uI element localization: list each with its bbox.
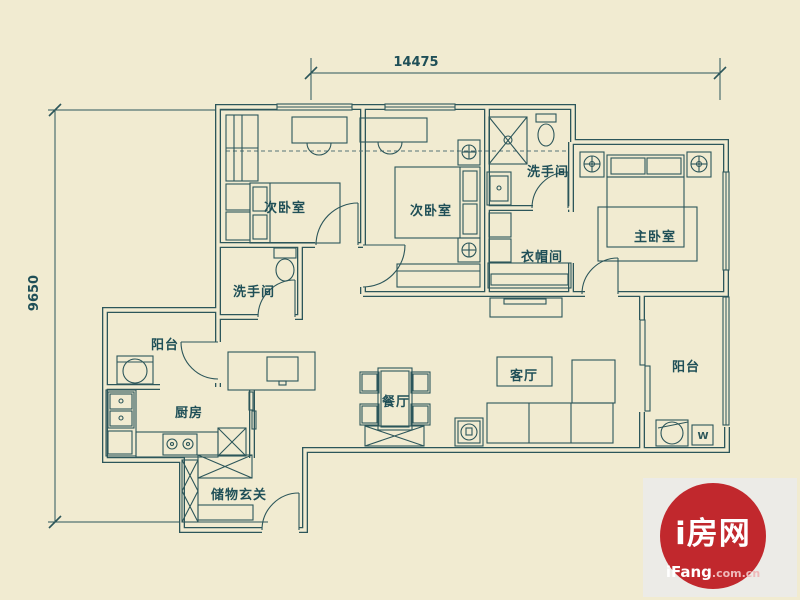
- dimension-height-label: 9650: [27, 275, 42, 311]
- room-label-kitchen: 厨房: [175, 405, 203, 421]
- room-label-bath-top: 洗手间: [527, 164, 569, 180]
- room-label-bedroom-mid: 次卧室: [410, 203, 452, 219]
- room-label-bedroom-left: 次卧室: [264, 200, 306, 216]
- window-bedroom-mid: [385, 104, 455, 110]
- window-bedroom-left: [277, 104, 352, 110]
- logo-brand-text: i房网: [675, 516, 751, 552]
- room-label-cloakroom: 衣帽间: [521, 249, 563, 265]
- room-label-dining: 餐厅: [381, 394, 410, 410]
- watermark-logo: i房网 iFang.com.cn: [643, 478, 797, 597]
- water-heater-label: W: [697, 431, 708, 442]
- room-label-bath-left: 洗手间: [233, 284, 275, 300]
- room-label-living: 客厅: [510, 368, 538, 384]
- dimension-width-label: 14475: [393, 55, 438, 70]
- window-balcony-right: [723, 297, 729, 425]
- room-label-balcony-right: 阳台: [672, 359, 700, 375]
- room-label-balcony-left: 阳台: [151, 337, 179, 353]
- room-label-master: 主卧室: [634, 229, 676, 245]
- floor-plan: 14475 9650: [0, 0, 800, 600]
- window-master-right: [723, 172, 729, 270]
- room-label-entry: 储物玄关: [210, 487, 267, 503]
